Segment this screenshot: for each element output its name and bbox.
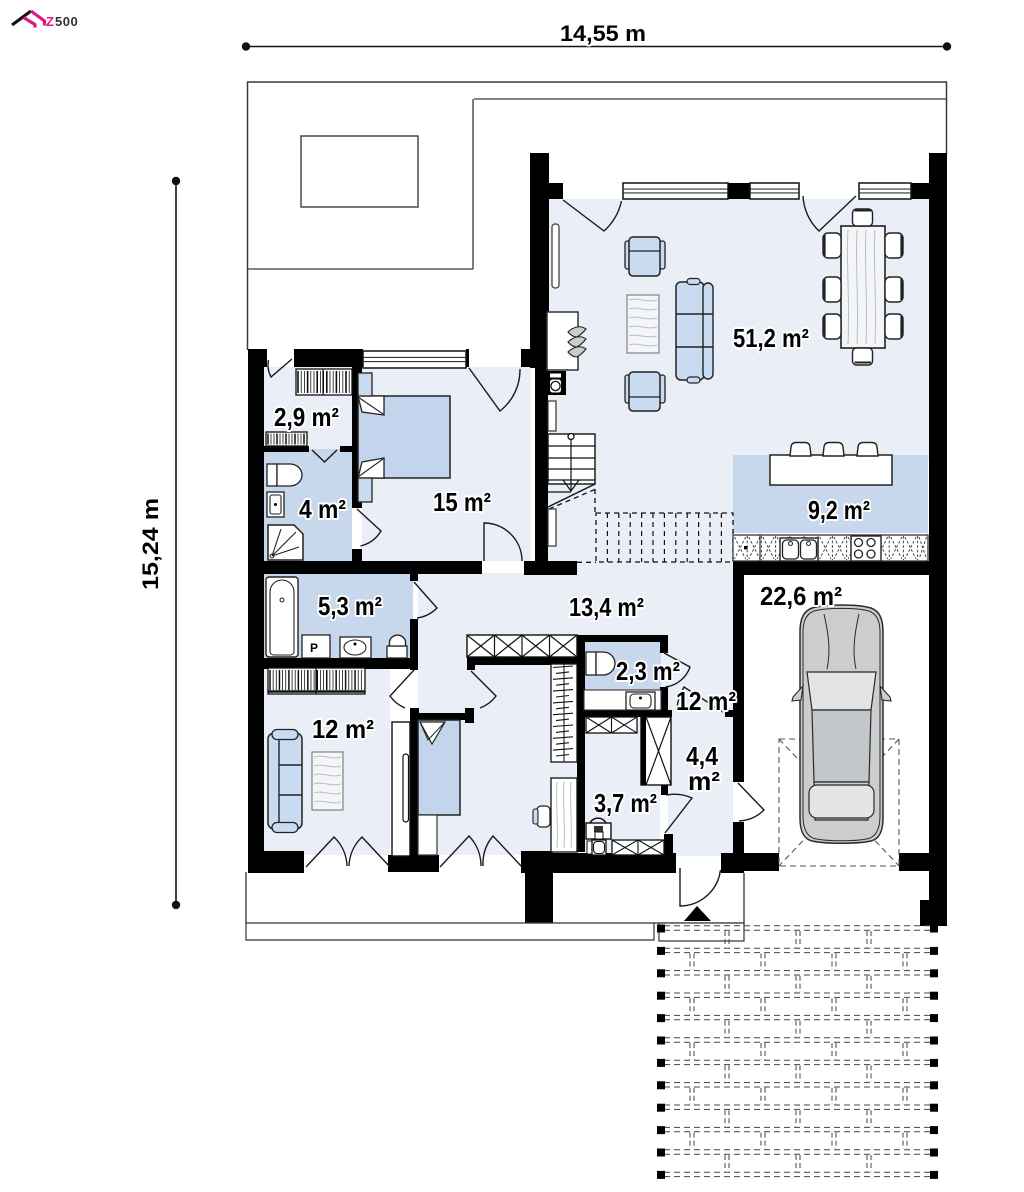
svg-text:3,7 m²: 3,7 m² — [594, 788, 657, 818]
svg-text:51,2 m²: 51,2 m² — [733, 323, 809, 353]
svg-text:9,2 m²: 9,2 m² — [808, 495, 870, 525]
svg-text:4 m²: 4 m² — [299, 494, 346, 524]
svg-text:14,55 m: 14,55 m — [560, 21, 646, 46]
svg-text:P: P — [310, 641, 318, 655]
svg-text:Z: Z — [46, 14, 54, 29]
svg-text:22,6 m²: 22,6 m² — [760, 581, 842, 611]
svg-text:15 m²: 15 m² — [433, 487, 491, 517]
svg-text:12 m²: 12 m² — [676, 686, 736, 716]
svg-text:2,9 m²: 2,9 m² — [274, 402, 339, 432]
svg-text:2,3 m²: 2,3 m² — [616, 656, 680, 686]
svg-text:15,24 m: 15,24 m — [138, 498, 163, 590]
svg-text:12 m²: 12 m² — [312, 714, 374, 744]
svg-text:m²: m² — [688, 766, 720, 796]
svg-text:13,4 m²: 13,4 m² — [569, 592, 644, 622]
svg-text:5,3 m²: 5,3 m² — [318, 591, 382, 621]
svg-text:500: 500 — [55, 14, 78, 29]
